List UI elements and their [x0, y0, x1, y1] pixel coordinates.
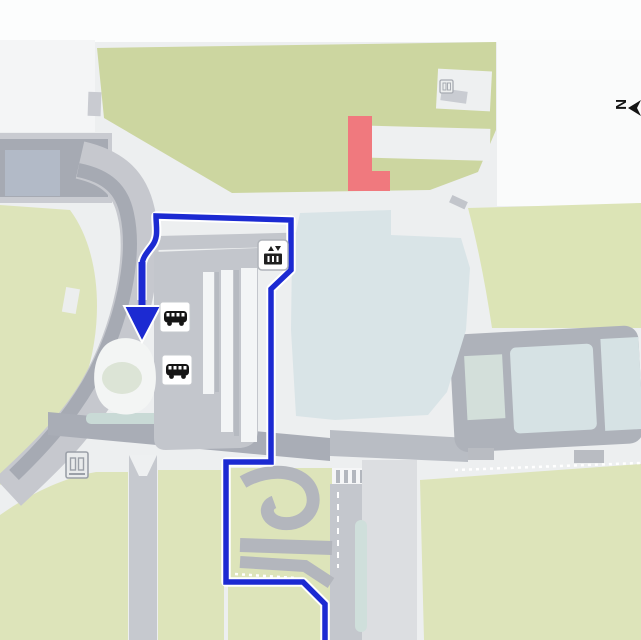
top-right-white	[497, 40, 641, 206]
facility-small-marker	[440, 80, 453, 93]
road-stub	[88, 92, 102, 116]
green-bottom-mid-1	[158, 470, 224, 640]
south-road-light	[362, 460, 417, 640]
south-median	[355, 520, 367, 632]
map-view[interactable]: N	[0, 0, 641, 640]
platform-stripe	[241, 268, 257, 442]
loop-tab	[574, 450, 604, 463]
green-bottom-right	[420, 464, 641, 640]
terminal-building	[291, 210, 470, 420]
top-white-band	[0, 0, 641, 42]
bus-stop-marker-1[interactable]	[160, 302, 190, 332]
bus-stop-marker-2[interactable]	[162, 355, 192, 385]
roundabout	[94, 338, 156, 414]
platform-stripe	[221, 270, 233, 432]
compass-n-label: N	[612, 99, 629, 110]
top-left-light	[0, 40, 95, 132]
map-canvas[interactable]: N	[0, 0, 641, 640]
platform-pillar	[234, 270, 239, 436]
west-south-road	[129, 455, 157, 640]
loop-cell	[600, 337, 641, 431]
loop-cell	[510, 343, 597, 433]
roundabout-island	[102, 362, 142, 394]
elevator-marker[interactable]	[258, 240, 288, 270]
facility-elevator-marker	[66, 452, 88, 478]
platform-pillar	[215, 272, 219, 392]
loop-tab	[468, 448, 494, 460]
loop-road-complex	[449, 325, 641, 453]
road-deck-blue	[5, 150, 60, 196]
hook-road-band	[240, 545, 332, 548]
platform-stripe	[203, 272, 214, 394]
green-right	[468, 203, 641, 328]
loop-cell	[464, 354, 505, 420]
